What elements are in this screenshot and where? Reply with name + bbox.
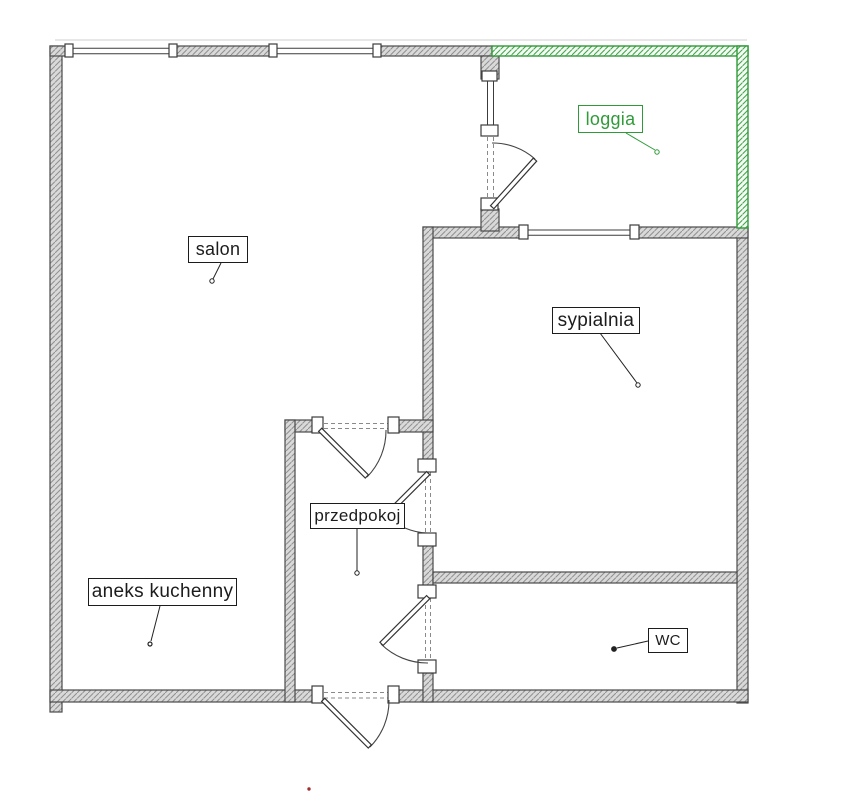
room-label-loggia: loggia [578, 105, 643, 133]
exterior-wall-bottom-right [399, 690, 748, 702]
loggia-wall-right [737, 46, 748, 228]
wall-sypialnia-top-a [423, 227, 524, 238]
leader-salon [210, 263, 221, 283]
interior-walls [285, 56, 748, 702]
door-entrance [312, 686, 399, 748]
exterior-walls [50, 46, 748, 712]
exterior-wall-right [737, 228, 748, 703]
wall-sypialnia-top-b [635, 227, 748, 238]
leader-aneks-kuchenny [148, 606, 160, 646]
window-salon-top-1 [65, 44, 177, 57]
floor-plan-drawing [0, 0, 865, 792]
door-przedpokoj-wc [380, 585, 436, 673]
wall-salon-przedpokoj-b [399, 420, 433, 432]
exterior-wall-left [50, 46, 62, 712]
door-salon-przedpokoj [312, 417, 399, 478]
wall-balcony-stub-bottom [481, 209, 499, 231]
exterior-wall-top-b [173, 46, 271, 56]
wall-przedpokoj-wc-bottom [423, 673, 433, 702]
leader-wc [612, 641, 648, 651]
leader-loggia [626, 133, 659, 154]
leader-przedpokoj [355, 528, 359, 575]
red-marker-dot [307, 787, 310, 790]
window-sypialnia-loggia [519, 225, 639, 239]
loggia-wall-top [492, 46, 748, 56]
exterior-wall-top-c [377, 46, 492, 56]
room-label-salon: salon [188, 236, 248, 263]
exterior-wall-bottom-left [50, 690, 313, 702]
room-label-sypialnia: sypialnia [552, 307, 640, 334]
room-label-przedpokoj: przedpokoj [310, 503, 405, 529]
floor-plan-canvas: salon loggia sypialnia przedpokoj aneks … [0, 0, 865, 792]
loggia-walls [492, 46, 748, 228]
window-salon-top-2 [269, 44, 381, 57]
room-label-aneks-kuchenny: aneks kuchenny [88, 578, 237, 606]
room-label-wc: WC [648, 628, 688, 653]
leader-sypialnia [600, 333, 640, 387]
wall-sypialnia-wc [433, 572, 737, 583]
door-loggia [481, 137, 537, 210]
wall-aneks-przedpokoj [285, 420, 295, 702]
window-balcony-fixed [481, 71, 498, 136]
